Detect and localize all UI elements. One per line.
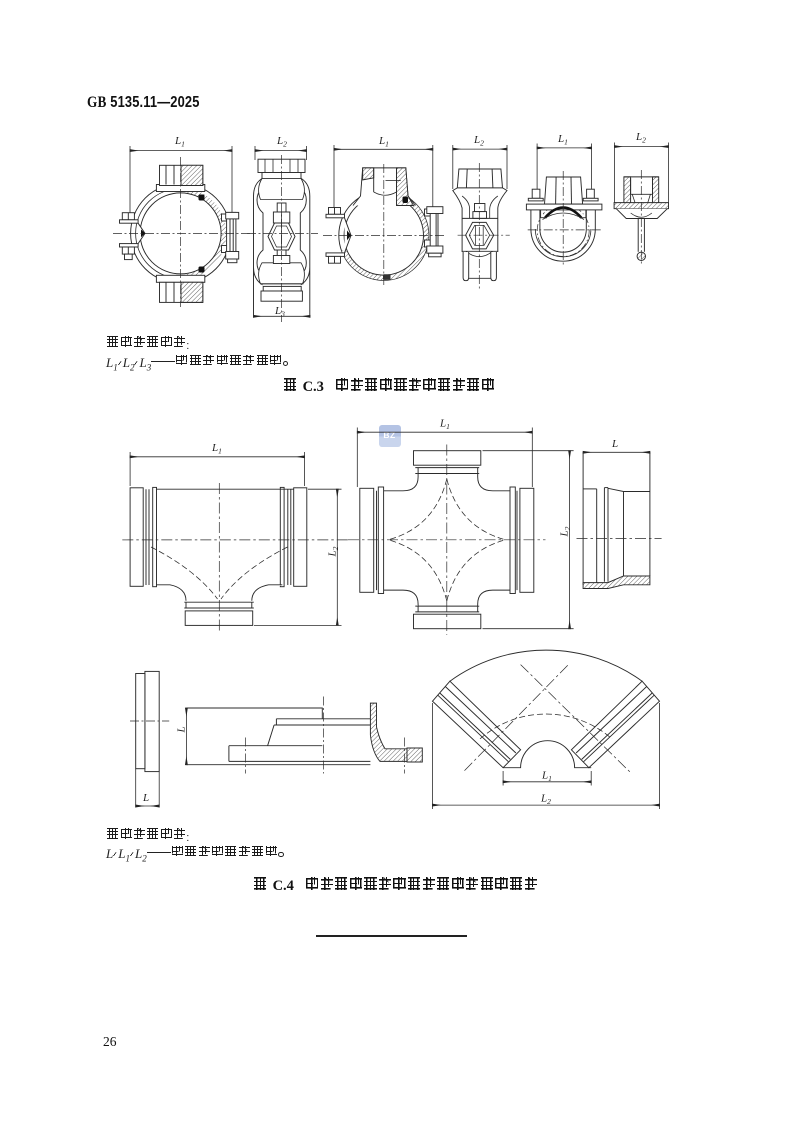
svg-text:L1: L1	[557, 133, 568, 147]
svg-text:L2: L2	[327, 546, 341, 557]
svg-text:L1: L1	[211, 442, 222, 456]
svg-text:L2: L2	[276, 135, 287, 149]
svg-text:L2: L2	[473, 134, 484, 148]
svg-text:L2: L2	[540, 793, 551, 807]
svg-text:L1: L1	[541, 770, 552, 784]
svg-text:L1: L1	[378, 135, 389, 149]
svg-text:L1: L1	[174, 135, 185, 149]
svg-text:L2: L2	[559, 526, 573, 537]
svg-text:L: L	[176, 726, 188, 733]
svg-text:L1: L1	[439, 418, 450, 432]
svg-text:L: L	[611, 438, 618, 450]
svg-text:L2: L2	[635, 131, 646, 145]
svg-text:L: L	[142, 792, 149, 804]
svg-text:L3: L3	[274, 305, 285, 319]
